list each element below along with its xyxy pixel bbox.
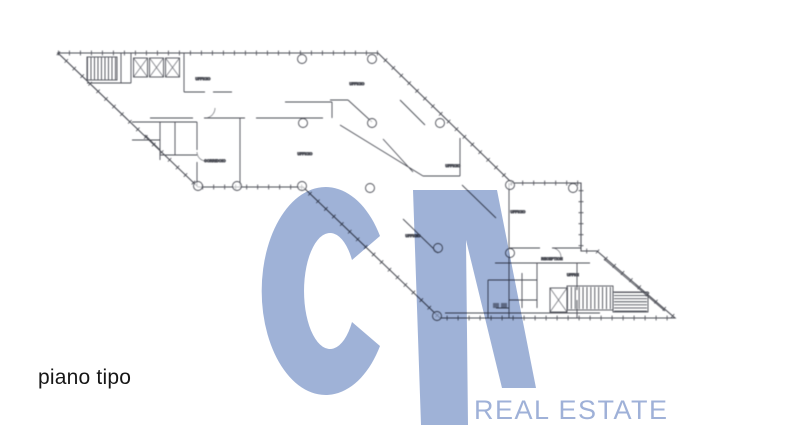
real-estate-floorplan-image: UFFICIOUFFICIOUFFICIOCORRIDOIOUFFICIOUFF… xyxy=(0,0,800,425)
watermark-letter-a xyxy=(413,190,536,425)
caption-piano-tipo: piano tipo xyxy=(38,366,131,390)
brand-real-estate: REAL ESTATE xyxy=(474,395,669,425)
watermark-letter-c xyxy=(262,187,380,395)
ca-watermark: CA REAL ESTATE xyxy=(0,0,800,425)
